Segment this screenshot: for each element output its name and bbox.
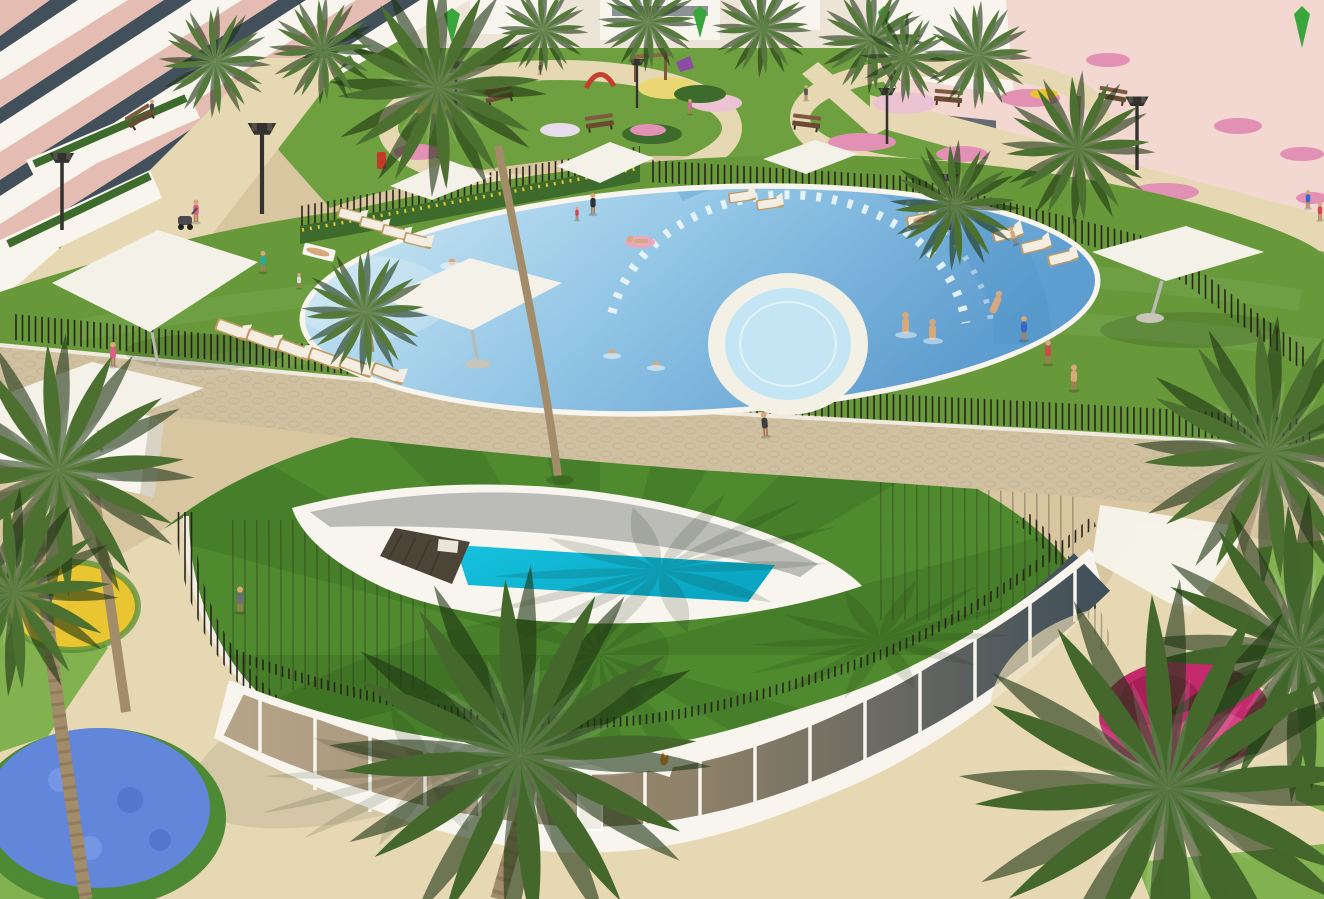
kids-pool bbox=[708, 273, 868, 415]
render-image: Aerial 3D architectural rendering of a r… bbox=[0, 0, 1324, 899]
